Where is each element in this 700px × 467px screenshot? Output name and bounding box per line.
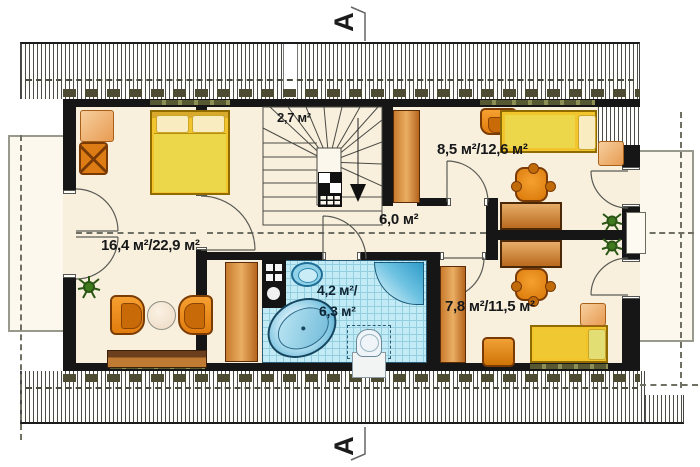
area-label-living-room: 16,4 м²/22,9 м²	[101, 237, 200, 254]
right-door1-frame-a	[622, 167, 640, 170]
chair-icon	[79, 142, 108, 175]
armrest	[511, 281, 522, 292]
pillow	[578, 115, 596, 150]
bath-chimney-icon	[262, 260, 286, 308]
armchair-icon	[110, 295, 145, 335]
section-marker-top: A	[329, 7, 357, 37]
armchair-icon	[178, 295, 213, 335]
bath-door-frame-a	[322, 252, 326, 260]
left-roofline-dashed	[20, 135, 22, 440]
pillow	[192, 115, 225, 133]
wall-room-tr-bottom	[417, 198, 447, 206]
wall-right-top	[622, 145, 640, 167]
wall-rooms-divider	[498, 230, 640, 240]
armchair-seat	[184, 303, 205, 329]
desk-icon	[500, 240, 562, 268]
right-door1-frame-b	[622, 204, 640, 207]
stool-icon	[482, 337, 515, 367]
wall-stairs-right	[382, 107, 393, 206]
wall-br-top-stub	[486, 252, 498, 260]
right-door2-frame-a	[622, 259, 640, 262]
area-label-bathroom-2: 6,3 м²	[319, 303, 356, 319]
wall-left-upper	[63, 107, 76, 190]
desk-icon	[500, 202, 562, 230]
right-balcony-dashed	[640, 232, 694, 234]
desk-chair-icon	[515, 167, 548, 202]
sideboard-icon	[107, 350, 207, 368]
wardrobe-icon	[393, 110, 420, 203]
wall-hall-bottom-left	[207, 252, 322, 260]
chimney-flue	[275, 264, 282, 271]
left-balcony	[8, 135, 63, 332]
window-top-studio	[150, 100, 230, 105]
toilet-icon	[356, 329, 382, 357]
section-marker-bottom: A	[329, 431, 357, 461]
coffee-table-icon	[147, 301, 176, 330]
basin-bowl	[298, 268, 318, 283]
window-top-right-b	[500, 100, 595, 105]
knee-wall-dashed-mid	[207, 232, 486, 234]
wall-bath-right	[427, 252, 440, 363]
area-label-staircase: 2,7 м²	[277, 110, 311, 125]
roof-band-bottom-right-ext	[645, 395, 684, 424]
br-door-frame-b	[482, 252, 486, 260]
roof-top-dashed	[26, 79, 634, 81]
wall-bath-top-right	[361, 252, 427, 260]
wall-left-lower	[63, 278, 76, 363]
roof-top-plate-marks	[63, 89, 640, 97]
pillow	[156, 115, 189, 133]
blanket	[154, 133, 226, 192]
floor-plan: 2,7 м² 8,5 м²/12,6 м² 6,0 м² 16,4 м²/22,…	[0, 0, 700, 467]
desk-chair-icon	[515, 268, 548, 301]
wardrobe-icon	[225, 262, 258, 362]
right-balcony	[640, 150, 694, 342]
headrest	[528, 163, 539, 174]
nightstand-icon	[580, 303, 606, 326]
right-roofline-dashed	[680, 112, 682, 388]
tr-door-frame-b	[484, 198, 488, 206]
chimney-checker-icon	[318, 172, 342, 194]
dresser-icon	[80, 110, 114, 142]
bottom-right-dashed	[640, 384, 698, 386]
wall-right-bottom	[622, 299, 640, 363]
right-door2-frame-b	[622, 296, 640, 299]
area-label-hallway: 6,0 м²	[379, 211, 418, 228]
chimney-flue	[275, 274, 282, 281]
area-label-room-bottom-right: 7,8 м²/11,5 м²	[445, 298, 535, 315]
armrest	[545, 181, 556, 192]
knee-wall-dashed-left	[76, 232, 196, 234]
vent-grid-icon	[318, 194, 342, 207]
tr-door-frame-a	[447, 198, 451, 206]
plant-shelf	[626, 212, 646, 254]
br-door-frame-a	[440, 252, 444, 260]
blanket	[534, 329, 586, 358]
window-bottom-right	[530, 364, 608, 369]
left-door-frame-top	[63, 190, 76, 194]
chimney-round-flue	[267, 287, 280, 300]
armrest	[545, 281, 556, 292]
pillow	[588, 329, 606, 360]
area-label-bathroom-1: 4,2 м²/	[317, 282, 357, 298]
bath-door-frame-b	[357, 252, 361, 260]
single-bed-icon	[530, 325, 608, 363]
left-door-frame-bottom	[63, 274, 76, 278]
double-bed-icon	[150, 110, 230, 195]
nightstand-icon	[598, 141, 624, 166]
area-label-room-top-right: 8,5 м²/12,6 м²	[437, 141, 528, 158]
armchair-seat	[121, 303, 142, 329]
wall-rooms-junction	[486, 198, 498, 260]
roof-bottom-dashed	[26, 387, 638, 389]
chimney-flue	[266, 264, 273, 271]
armrest	[511, 181, 522, 192]
toilet-bowl	[360, 334, 379, 352]
chimney-flue	[266, 274, 273, 281]
